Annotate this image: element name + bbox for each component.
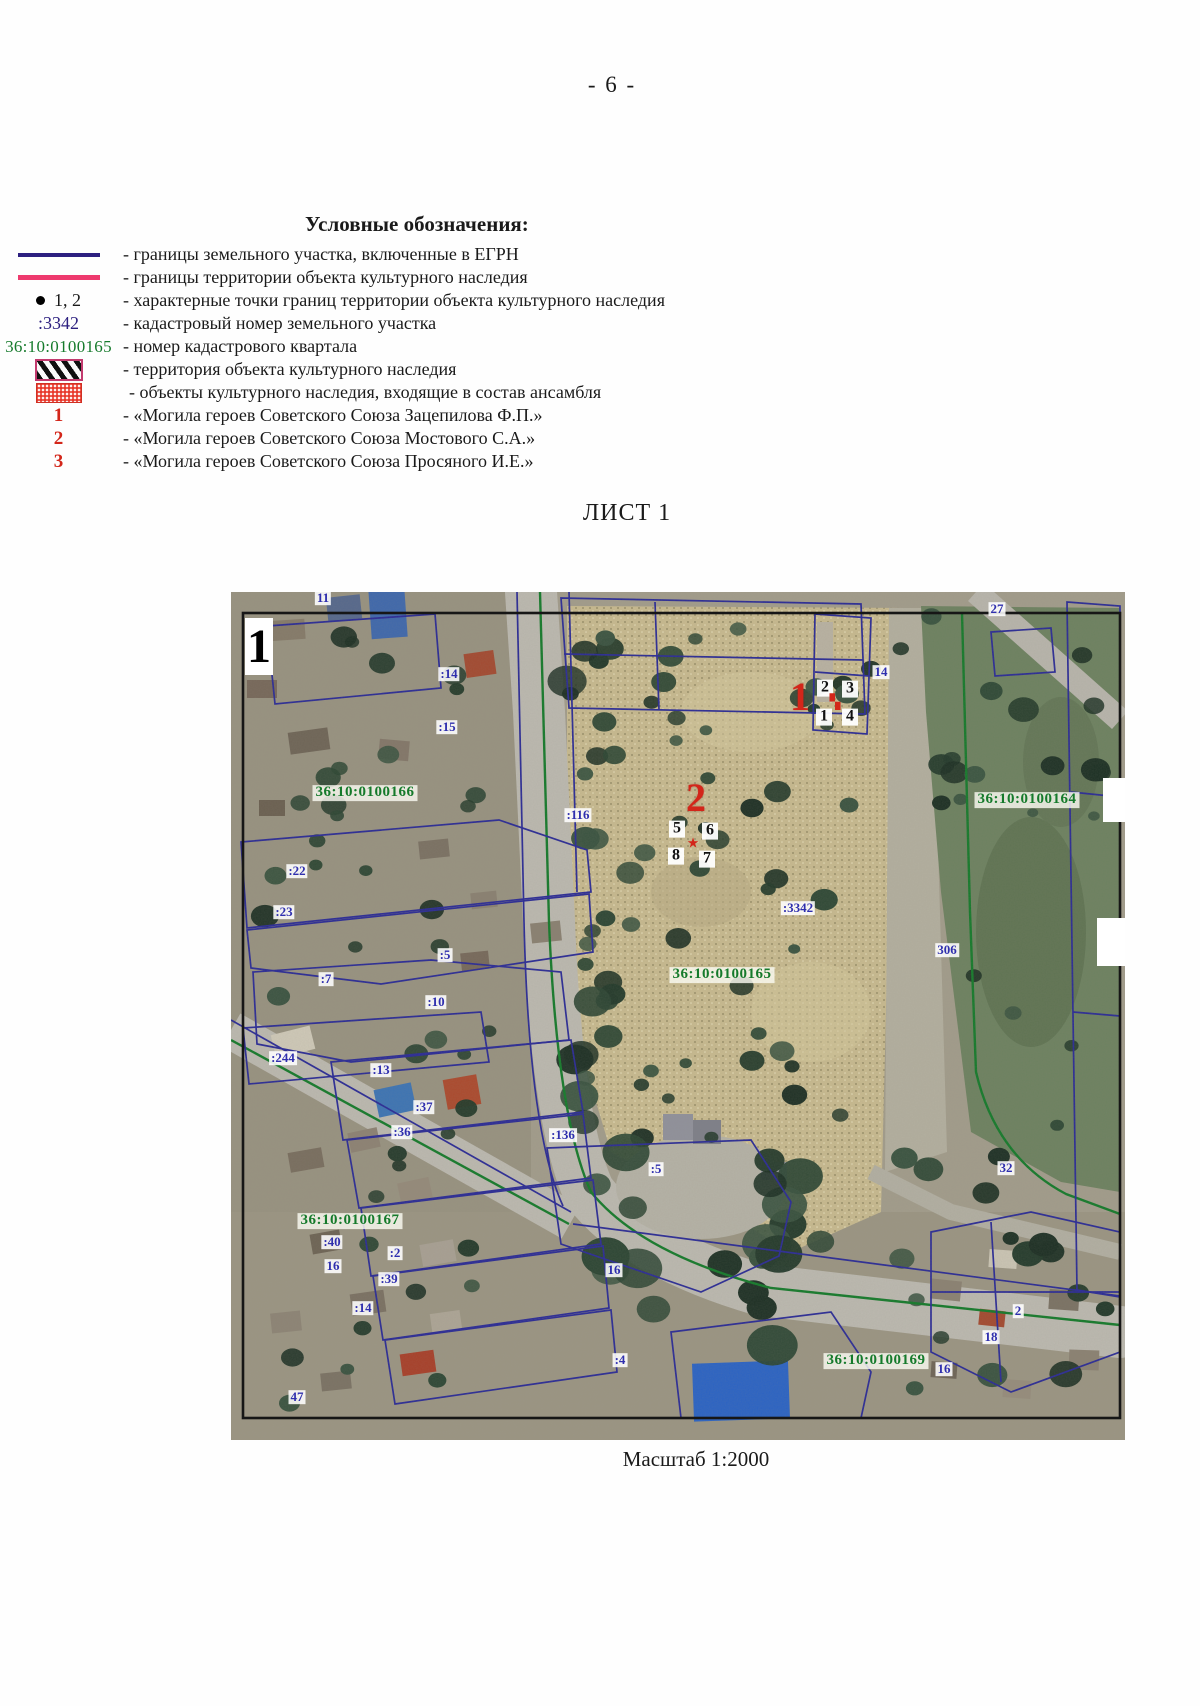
boundary-point-number: 7	[699, 851, 715, 868]
parcel-number-label: 16	[936, 1362, 953, 1376]
legend-item-label: - номер кадастрового квартала	[123, 337, 357, 356]
parcel-number-label: :22	[286, 864, 307, 878]
parcel-number-label: 14	[873, 665, 890, 679]
legend-item-label: - кадастровый номер земельного участка	[123, 314, 436, 333]
parcel-number-label: :7	[319, 972, 334, 986]
parcel-number-label: 27	[989, 602, 1006, 616]
parcel-number-label: :136	[549, 1128, 577, 1142]
cadastral-quarter-label: 36:10:0100165	[670, 967, 775, 983]
cadastral-quarter-label: 36:10:0100166	[313, 785, 418, 801]
legend-item-heritage-territory: - территория объекта культурного наследи…	[0, 358, 1200, 381]
legend-item-egrn-boundary: - границы земельного участка, включенные…	[0, 243, 1200, 266]
map-labels-layer: 11:14:1514:22:23:7:5:10:244:13:37:36:2:3…	[231, 592, 1125, 1440]
parcel-number-label: :36	[391, 1125, 412, 1139]
legend-item-label: - характерные точки границ территории об…	[123, 291, 665, 310]
parcel-number-label: :3342	[781, 901, 815, 915]
legend-item-label: - объекты культурного наследия, входящие…	[129, 383, 601, 402]
heritage-point-mark: ★	[687, 838, 700, 853]
red-number-1: 1	[54, 406, 64, 426]
legend-item-label: - «Могила героев Советского Союза Просян…	[123, 452, 533, 471]
boundary-point-number: 4	[842, 709, 858, 726]
legend: Условные обозначения: - границы земельно…	[0, 212, 1200, 473]
parcel-number-label: :116	[564, 808, 591, 822]
legend-item-quarter-number: 36:10:0100165 - номер кадастрового кварт…	[0, 335, 1200, 358]
parcel-number-label: :5	[649, 1162, 664, 1176]
sheet-title: ЛИСТ 1	[27, 500, 1200, 527]
cadastral-map-sheet-1: 11:14:1514:22:23:7:5:10:244:13:37:36:2:3…	[231, 592, 1125, 1440]
parcel-number-label: 18	[983, 1330, 1000, 1344]
legend-item-heritage-boundary: - границы территории объекта культурного…	[0, 266, 1200, 289]
parcel-number-label: 16	[325, 1259, 342, 1273]
cadastral-quarter-label: 36:10:0100164	[975, 792, 1080, 808]
document-page: - 6 - Условные обозначения: - границы зе…	[0, 0, 1200, 1706]
cadastral-quarter-label: 36:10:0100167	[298, 1213, 403, 1229]
point-dot-icon	[36, 296, 45, 305]
legend-item-heritage-objects: - объекты культурного наследия, входящие…	[0, 381, 1200, 404]
parcel-number-label: 306	[935, 943, 959, 957]
egrn-line-symbol	[0, 253, 117, 257]
parcel-number-label: :39	[378, 1272, 399, 1286]
red-number-3: 3	[54, 452, 64, 472]
map-scale: Масштаб 1:2000	[249, 1447, 1143, 1472]
legend-item-label: - «Могила героев Советского Союза Мостов…	[123, 429, 535, 448]
parcel-number-label: :5	[438, 948, 453, 962]
parcel-number-label: :14	[352, 1301, 373, 1315]
dotted-swatch-icon	[36, 383, 82, 403]
page-number: - 6 -	[12, 72, 1200, 98]
boundary-point-number: 6	[702, 823, 718, 840]
legend-item-grave-3: 3 - «Могила героев Советского Союза Прос…	[0, 450, 1200, 473]
parcel-number-label: :40	[321, 1235, 342, 1249]
parcel-number-label: :15	[436, 720, 457, 734]
legend-item-grave-2: 2 - «Могила героев Советского Союза Мост…	[0, 427, 1200, 450]
boundary-point-number: 8	[668, 848, 684, 865]
red-number-symbol: 3	[0, 452, 117, 472]
quarter-number-example: 36:10:0100165	[5, 338, 112, 356]
legend-title: Условные обозначения:	[305, 212, 1200, 243]
legend-item-boundary-points: 1, 2 - характерные точки границ территор…	[0, 289, 1200, 312]
boundary-point-number: 2	[817, 680, 833, 697]
cadastral-number-example: :3342	[38, 314, 79, 333]
heritage-marker-number: 1	[790, 676, 810, 718]
boundary-point-symbol: 1, 2	[0, 291, 117, 310]
hatch-swatch-icon	[35, 359, 83, 381]
red-number-2: 2	[54, 429, 64, 449]
point-numbers: 1, 2	[54, 291, 81, 310]
dotted-swatch-symbol	[0, 383, 117, 403]
heritage-point-mark: ▚	[830, 697, 841, 712]
legend-item-label: - территория объекта культурного наследи…	[123, 360, 456, 379]
parcel-number-label: 16	[606, 1263, 623, 1277]
parcel-number-label: :10	[425, 995, 446, 1009]
parcel-number-label: :2	[388, 1246, 403, 1260]
parcel-number-label: 47	[289, 1390, 306, 1404]
parcel-number-label: :4	[613, 1353, 628, 1367]
parcel-number-label: :14	[438, 667, 459, 681]
legend-item-grave-1: 1 - «Могила героев Советского Союза Заце…	[0, 404, 1200, 427]
pink-line-icon	[18, 275, 100, 280]
legend-item-label: - границы земельного участка, включенные…	[123, 245, 519, 264]
heritage-line-symbol	[0, 275, 117, 280]
parcel-number-label: 2	[1013, 1304, 1024, 1318]
parcel-number-label: :13	[370, 1063, 391, 1077]
legend-item-label: - границы территории объекта культурного…	[123, 268, 528, 287]
sheet-corner-number: 1	[245, 618, 273, 675]
boundary-point-number: 5	[669, 821, 685, 838]
heritage-marker-number: 2	[686, 777, 706, 819]
parcel-number-label: :23	[273, 905, 294, 919]
parcel-number-label: 11	[315, 591, 331, 605]
quarter-number-symbol: 36:10:0100165	[0, 338, 117, 356]
red-number-symbol: 2	[0, 429, 117, 449]
hatch-swatch-symbol	[0, 359, 117, 381]
cadastral-quarter-label: 36:10:0100169	[824, 1353, 929, 1369]
parcel-number-label: :244	[269, 1051, 297, 1065]
legend-item-label: - «Могила героев Советского Союза Зацепи…	[123, 406, 543, 425]
legend-item-cadastral-number: :3342 - кадастровый номер земельного уча…	[0, 312, 1200, 335]
red-number-symbol: 1	[0, 406, 117, 426]
parcel-number-label: :37	[413, 1100, 434, 1114]
boundary-point-number: 3	[842, 681, 858, 698]
navy-line-icon	[18, 253, 100, 257]
parcel-number-label: 32	[998, 1161, 1015, 1175]
cadastral-number-symbol: :3342	[0, 314, 117, 333]
